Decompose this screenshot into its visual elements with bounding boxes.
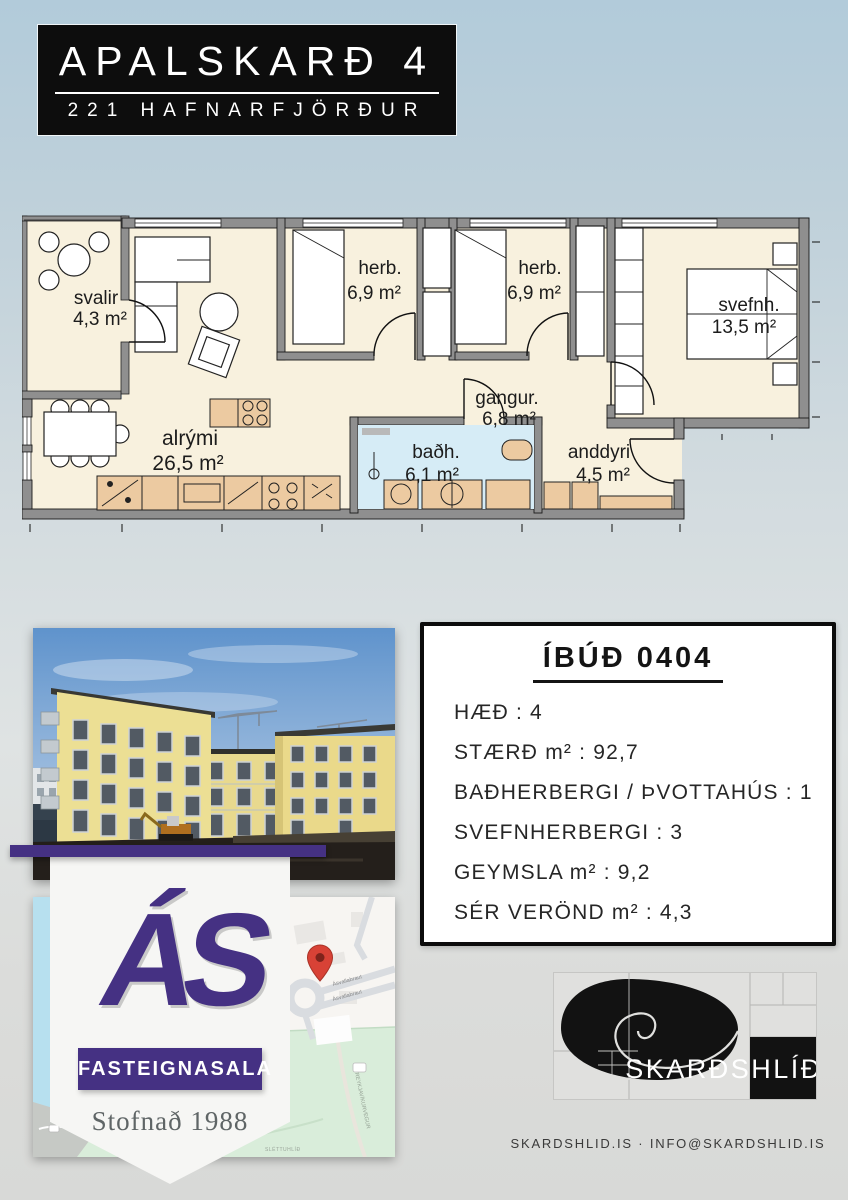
room-label: anddyri xyxy=(568,442,630,463)
route-shield xyxy=(353,1063,366,1072)
room-area: 6,9 m² xyxy=(347,283,401,304)
room-label: herb. xyxy=(518,258,561,279)
room-area: 13,5 m² xyxy=(712,317,776,338)
agency-tagline: Stofnað 1988 xyxy=(50,1106,290,1137)
as-logo: ÁS ÁS xyxy=(65,877,275,1037)
room-label: herb. xyxy=(358,258,401,279)
room-label: svalir xyxy=(74,288,119,309)
room-area: 4,3 m² xyxy=(73,309,127,330)
room-label: baðh. xyxy=(412,442,460,463)
building-photo xyxy=(33,628,395,880)
info-row-terrace: SÉR VERÖND m² : 4,3 xyxy=(454,893,832,933)
room-area: 6,8 m² xyxy=(482,409,536,430)
developer-logo-text: SKARÐSHLÍÐ xyxy=(625,1054,816,1084)
building-right xyxy=(275,724,395,840)
footer-contact: SKARDSHLID.IS · INFO@SKARDSHLID.IS xyxy=(488,1136,848,1151)
page-title: APALSKARÐ 4 xyxy=(38,38,456,85)
apartment-id-title: ÍBÚÐ 0404 xyxy=(533,642,723,683)
building-left xyxy=(41,688,215,846)
room-label: svefnh. xyxy=(718,295,779,316)
info-row-floor: HÆÐ : 4 xyxy=(454,693,832,733)
info-row-storage: GEYMSLA m² : 9,2 xyxy=(454,853,832,893)
room-area: 26,5 m² xyxy=(152,452,223,475)
info-row-size: STÆRÐ m² : 92,7 xyxy=(454,733,832,773)
room-area: 4,5 m² xyxy=(576,465,630,486)
area-label: SLÉTTUHLÍÐ xyxy=(265,1146,301,1153)
header-divider xyxy=(55,92,439,94)
header-box: APALSKARÐ 4 221 HAFNARFJÖRÐUR xyxy=(38,25,456,135)
room-area: 6,9 m² xyxy=(507,283,561,304)
developer-logo-panel: SKARÐSHLÍÐ xyxy=(553,972,817,1100)
info-row-bedrooms: SVEFNHERBERGI : 3 xyxy=(454,813,832,853)
room-label: gangur. xyxy=(475,388,538,409)
flyer-page: APALSKARÐ 4 221 HAFNARFJÖRÐUR xyxy=(0,0,848,1200)
as-logo-text: ÁS xyxy=(90,887,275,1034)
room-label: alrými xyxy=(162,427,218,450)
golden-spiral-logo: SKARÐSHLÍÐ xyxy=(554,973,816,1099)
agency-pennant: ÁS ÁS FASTEIGNASALA Stofnað 1988 xyxy=(50,857,290,1184)
agency-banner: FASTEIGNASALA xyxy=(78,1048,262,1090)
apartment-info-card: ÍBÚÐ 0404 HÆÐ : 4 STÆRÐ m² : 92,7 BAÐHER… xyxy=(420,622,836,946)
room-area: 6,1 m² xyxy=(405,465,459,486)
info-row-bathroom: BAÐHERBERGI / ÞVOTTAHÚS : 1 xyxy=(454,773,832,813)
floor-plan: svalir 4,3 m² alrými 26,5 m² herb. 6,9 m… xyxy=(22,212,846,542)
brand-bar xyxy=(10,845,326,857)
header-subtitle: 221 HAFNARFJÖRÐUR xyxy=(38,100,456,122)
